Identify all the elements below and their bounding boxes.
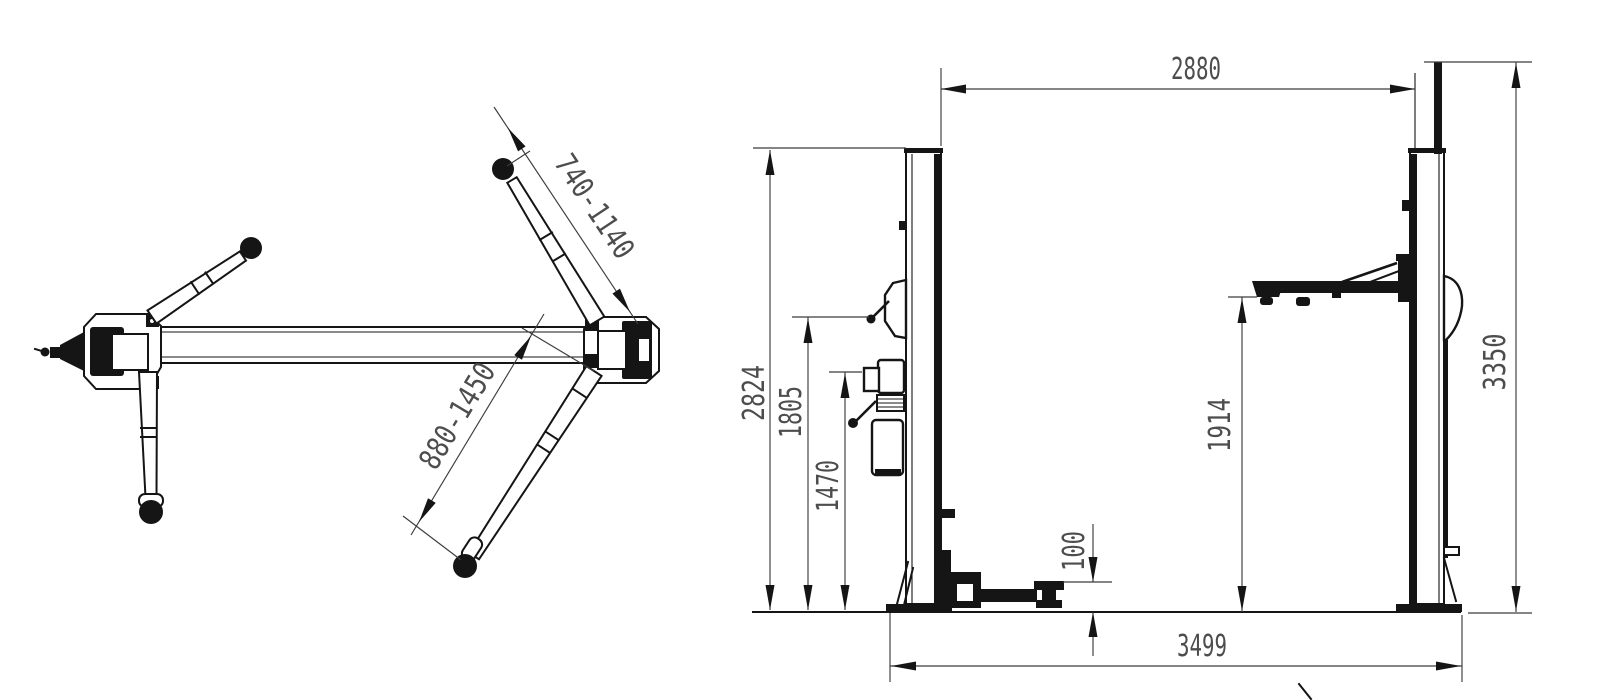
arm-pad <box>453 554 477 578</box>
dim-clear-width: 2880 <box>941 52 1415 146</box>
plan-view: 740-1140 880-1450 <box>35 107 659 578</box>
dim-lifting-height: 1914 <box>1203 297 1257 612</box>
extension-column <box>1434 62 1442 154</box>
dim-overall-width: 3499 <box>890 613 1462 682</box>
power-unit-plan <box>35 332 84 371</box>
control-handle <box>856 401 876 421</box>
arm-pad <box>1034 581 1064 590</box>
right-column <box>1402 62 1462 604</box>
dim-label-1914: 1914 <box>1203 398 1238 452</box>
right-base-plate <box>1396 604 1462 612</box>
carriage <box>1398 258 1410 302</box>
short-arm-plan-left <box>148 237 263 324</box>
arm-pad <box>1252 281 1284 297</box>
long-arm-plan-left <box>139 372 163 524</box>
dim-label-1805: 1805 <box>774 386 809 438</box>
arm-pad <box>492 158 514 180</box>
lift-arm-lowered <box>941 550 1064 608</box>
lift-arm-raised <box>1252 254 1412 306</box>
two-post-lift-drawing: 740-1140 880-1450 <box>0 0 1600 700</box>
dim-label-3350: 3350 <box>1478 334 1513 391</box>
front-view: 2880 2824 1805 1470 <box>737 52 1532 699</box>
dim-short-arm-reach: 740-1140 <box>494 107 641 324</box>
technical-drawing-canvas: 740-1140 880-1450 <box>0 0 1600 700</box>
left-column <box>897 148 955 605</box>
dim-label-1470: 1470 <box>811 460 846 512</box>
dim-label-3499: 3499 <box>1177 629 1227 664</box>
arm-pad <box>139 500 163 524</box>
oil-tank <box>872 420 903 475</box>
dim-label-2880: 2880 <box>1171 52 1221 87</box>
dim-power-unit-height: 1470 <box>811 372 862 610</box>
arm-pivot-cover <box>885 280 906 338</box>
arm-pad <box>240 237 262 259</box>
power-unit <box>848 280 906 476</box>
dim-label-100: 100 <box>1057 531 1092 571</box>
motor <box>878 360 904 393</box>
motor-cap <box>864 368 879 391</box>
dim-min-pad-height: 100 <box>1057 524 1112 656</box>
dim-label-2824: 2824 <box>737 365 772 421</box>
leader-tick <box>1299 684 1311 699</box>
cable-cover <box>1444 276 1462 340</box>
